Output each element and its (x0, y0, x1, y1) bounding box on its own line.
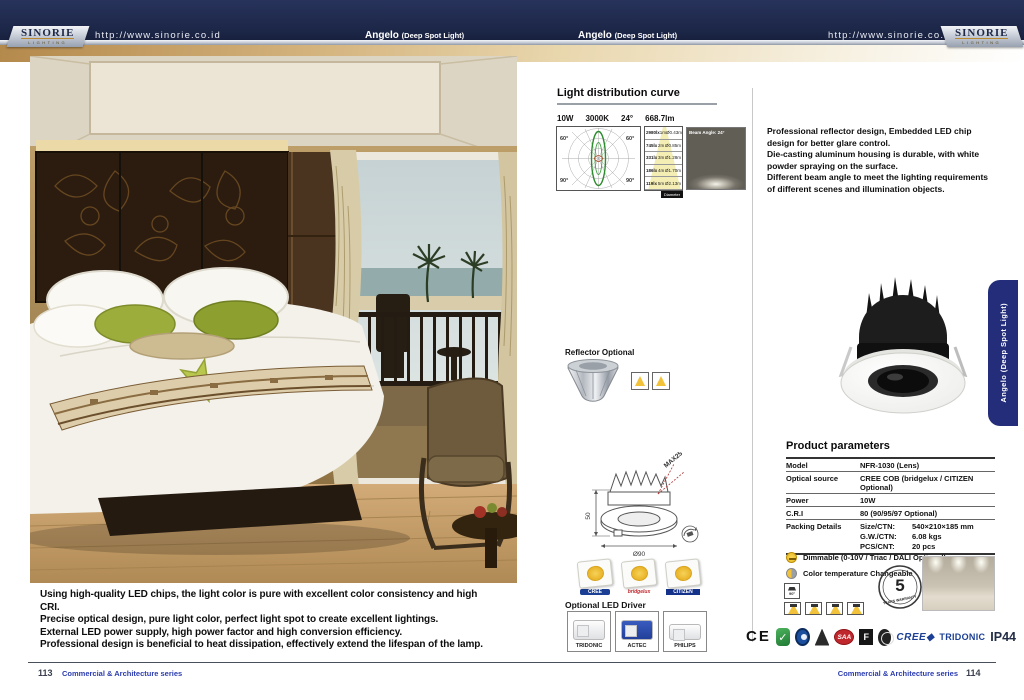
chip-image (621, 558, 658, 588)
website-url-right: http://www.sinorie.co.id (828, 30, 954, 41)
spec-power: 10W (557, 114, 573, 123)
saa-badge: SAA (834, 629, 854, 645)
side-tab-label: Angelo (Deep Spot Light) (999, 303, 1008, 403)
packing-line: PCS/CNT: 20 pcs (860, 542, 995, 552)
ip-rating: IP44 (990, 630, 1016, 644)
cct-option-icons (784, 602, 864, 615)
ce-mark: CE (746, 628, 771, 646)
brand-logo-left: SINORIE LIGHTING (7, 26, 90, 47)
product-parameters-title: Product parameters (786, 440, 890, 452)
tilt-angle-icon: 90° (784, 583, 800, 599)
driver-brand: PHILIPS (674, 643, 695, 649)
product-description: Professional reflector design, Embedded … (767, 126, 997, 195)
dimension-sketch: MAX25° 50 Ø90 (570, 452, 708, 560)
polar-diagram: 60° 60° 90° 90° (556, 126, 641, 191)
spec-lumen: 668.7lm (645, 114, 674, 123)
polar-label: 90° (560, 178, 568, 184)
beam-angle-label: Beam Angle: 24° (689, 130, 724, 135)
footer-rule (28, 662, 996, 663)
cone-row: 119lx 5m Ø2.13m (645, 177, 682, 190)
driver-option-philips: PHILIPS (663, 611, 707, 652)
driver-option-tridonic: TRIDONIC (567, 611, 611, 652)
led-die (586, 565, 604, 582)
description-line: Different beam angle to meet the lightin… (767, 172, 997, 195)
cree-logo: CREE◆ (896, 632, 934, 643)
driver-option-actec: ACTEC (615, 611, 659, 652)
feature-line: External LED power supply, high power fa… (40, 627, 490, 640)
feature-line: Professional design is beneficial to hea… (40, 639, 490, 652)
beam-angle-option-icon (631, 372, 649, 390)
application-photo (922, 556, 995, 611)
bedroom-photo (30, 56, 517, 583)
chip-brand-label: CREE (580, 589, 610, 595)
feature-text-block: Using high-quality LED chips, the light … (40, 589, 490, 652)
title-underline (557, 103, 717, 105)
warranty-badge: 5 YEARS WARRANTY (876, 563, 924, 616)
rohs-badge-icon: ✓ (776, 628, 790, 646)
description-line: Professional reflector design, Embedded … (767, 126, 997, 149)
driver-image (621, 620, 653, 640)
series-label-left: Commercial & Architecture series (62, 669, 182, 678)
brand-logo-right: SINORIE LIGHTING (941, 26, 1024, 47)
certification-badge-triangle-icon (815, 629, 830, 646)
beam-icon (635, 376, 645, 386)
cone-diameter-tag: Diameter (661, 191, 683, 198)
page-side-tab: Angelo (Deep Spot Light) (988, 280, 1018, 426)
product-subtitle: (Deep Spot Light) (402, 31, 465, 40)
optional-driver-title: Optional LED Driver (565, 600, 646, 610)
spec-cct: 3000K (585, 114, 609, 123)
parameters-table: Model NFR-1030 (Lens) Optical source CRE… (786, 457, 995, 555)
product-photo (815, 255, 990, 445)
table-row: Power 10W (786, 494, 995, 507)
beam-icon (656, 376, 666, 386)
table-row: C.R.I 80 (90/95/97 Optional) (786, 507, 995, 520)
polar-label: 60° (560, 136, 568, 142)
cob-chip-citizen: CITIZEN (663, 560, 703, 600)
packing-line: Size/CTN: 540×210×185 mm (860, 522, 995, 532)
warranty-years: 5 (895, 576, 904, 595)
led-die (674, 565, 692, 582)
cob-chip-bridgelux: bridgelux (619, 560, 659, 600)
packing-line: G.W./CTN: 6.08 kgs (860, 532, 995, 542)
spec-row: 10W 3000K 24° 668.7lm (557, 114, 747, 123)
tilt-adjust-icon (682, 526, 698, 542)
brand-name: SINORIE (955, 28, 1008, 38)
emc-badge: F (859, 629, 873, 645)
driver-image (669, 624, 701, 640)
bedroom-scene-illustration (30, 56, 517, 583)
brand-name: SINORIE (21, 28, 74, 38)
cone-diagram: 2980lx 1m Ø0.43m 745lx 2m Ø0.85m 331lx 3… (644, 126, 683, 191)
table-row: Model NFR-1030 (Lens) (786, 459, 995, 472)
certification-row: CE ✓ SAA F CREE◆ TRIDONIC IP44 (746, 626, 1016, 648)
driver-brand: TRIDONIC (576, 643, 603, 649)
downlight-icon (805, 602, 822, 615)
cone-row: 186lx 4m Ø1.70m (645, 165, 682, 178)
catalog-spread: SINORIE LIGHTING http://www.sinorie.co.i… (0, 0, 1024, 700)
warranty-stamp: 5 YEARS WARRANTY (876, 563, 924, 611)
table-row: Optical source CREE COB (bridgelux / CIT… (786, 472, 995, 494)
certification-badge-blue-icon (795, 628, 810, 646)
feature-line: Using high-quality LED chips, the light … (40, 589, 490, 614)
light-distribution-title: Light distribution curve (557, 87, 680, 99)
cob-chip-cree: CREE (575, 560, 615, 600)
certification-badge-round-icon (878, 629, 891, 646)
beam-angle-option-icon (652, 372, 670, 390)
chip-brand-label: bridgelux (619, 589, 659, 595)
led-die (630, 565, 648, 582)
tridonic-logo: TRIDONIC (939, 632, 985, 642)
product-title-right: Angelo (Deep Spot Light) (578, 30, 677, 41)
downlight-icon (784, 602, 801, 615)
column-divider (752, 88, 753, 642)
product-subtitle: (Deep Spot Light) (615, 31, 678, 40)
beam-render-image: Beam Angle: 24° (686, 127, 746, 190)
cone-row: 2980lx 1m Ø0.43m (645, 127, 682, 140)
cone-row: 745lx 2m Ø0.85m (645, 140, 682, 153)
chip-image (665, 558, 702, 588)
feature-line: Precise optical design, pure light color… (40, 614, 490, 627)
driver-brand: ACTEC (628, 643, 647, 649)
cone-row: 331lx 3m Ø1.28m (645, 152, 682, 165)
description-line: Die-casting aluminum housing is durable,… (767, 149, 997, 172)
polar-label: 90° (626, 178, 634, 184)
table-row-packing: Packing Details Size/CTN: 540×210×185 mm… (786, 520, 995, 555)
product-title-left: Angelo (Deep Spot Light) (365, 30, 464, 41)
dimension-drawing: MAX25° 50 Ø90 (570, 452, 708, 565)
max-tilt-label: MAX25° (662, 452, 686, 470)
downlight-icon (847, 602, 864, 615)
product-name: Angelo (578, 30, 612, 41)
downlight-illustration (815, 255, 990, 440)
brand-subtitle: LIGHTING (955, 38, 1008, 45)
website-url-left: http://www.sinorie.co.id (95, 30, 221, 41)
brand-subtitle: LIGHTING (21, 38, 74, 45)
page-number-left: 113 (38, 668, 53, 678)
diameter-dimension: Ø90 (633, 551, 646, 558)
page-number-right: 114 (966, 668, 981, 678)
spec-beam-angle: 24° (621, 114, 633, 123)
dimmable-icon (786, 552, 797, 563)
series-label-right: Commercial & Architecture series (800, 669, 958, 678)
polar-curve-chart: 60° 60° 90° 90° (557, 127, 640, 190)
reflector-image (562, 356, 624, 409)
polar-label: 60° (626, 136, 634, 142)
tilt-degree-label: 90° (789, 591, 795, 596)
chip-image (577, 558, 614, 588)
reflector-illustration (562, 356, 624, 404)
color-temperature-icon (786, 568, 797, 579)
driver-image (573, 620, 605, 640)
height-dimension: 50 (585, 512, 592, 520)
downlight-icon (826, 602, 843, 615)
product-name: Angelo (365, 30, 399, 41)
chip-brand-label: CITIZEN (666, 589, 700, 595)
lamp-glyph (788, 587, 796, 591)
